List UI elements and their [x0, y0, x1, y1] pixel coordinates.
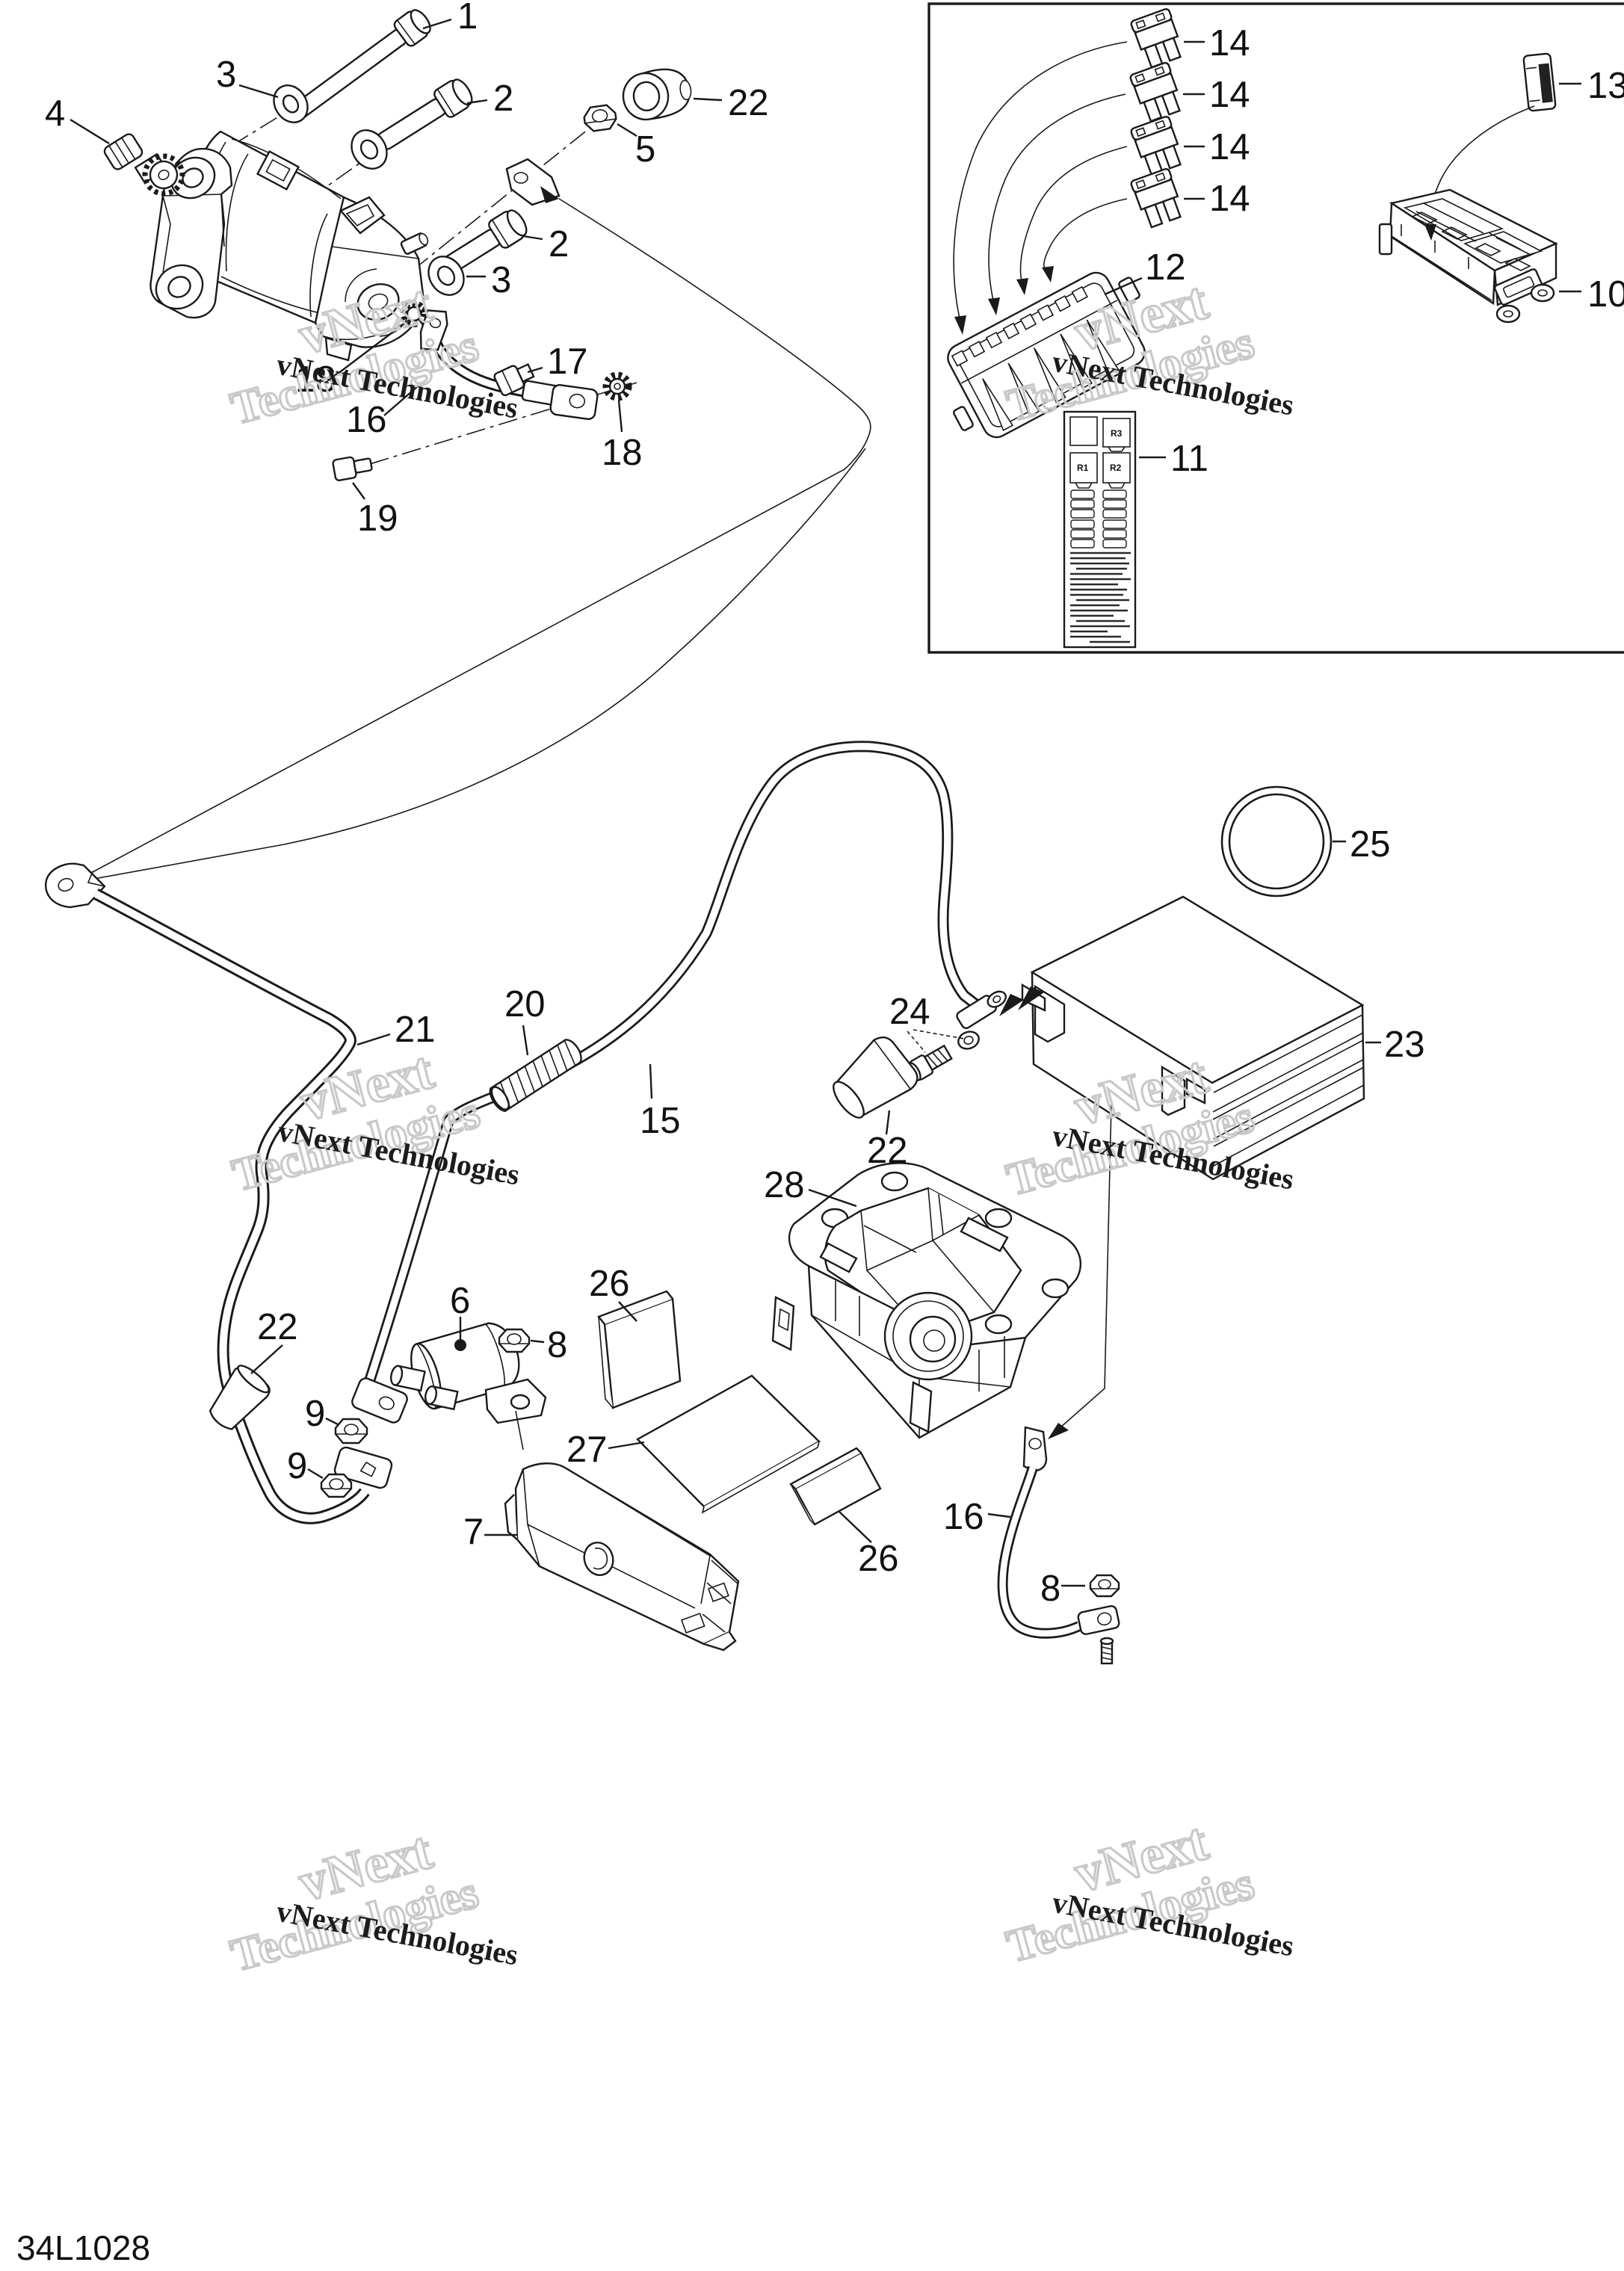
svg-text:14: 14 — [1209, 179, 1250, 219]
svg-text:20: 20 — [504, 984, 546, 1025]
svg-text:14: 14 — [1209, 127, 1250, 167]
svg-text:8: 8 — [1040, 1569, 1060, 1609]
svg-text:19: 19 — [357, 498, 398, 539]
svg-text:26: 26 — [858, 1539, 899, 1579]
svg-text:2: 2 — [549, 224, 569, 265]
svg-text:16: 16 — [943, 1497, 984, 1537]
svg-text:R1: R1 — [1077, 463, 1089, 473]
svg-text:14: 14 — [1209, 23, 1250, 64]
svg-text:3: 3 — [491, 260, 511, 300]
svg-text:27: 27 — [566, 1430, 608, 1470]
svg-text:22: 22 — [728, 83, 769, 123]
svg-text:13: 13 — [1587, 66, 1624, 106]
svg-text:3: 3 — [216, 55, 236, 95]
svg-text:28: 28 — [764, 1165, 805, 1205]
svg-text:5: 5 — [635, 129, 655, 170]
svg-text:8: 8 — [547, 1325, 567, 1365]
svg-text:23: 23 — [1384, 1025, 1425, 1065]
svg-text:14: 14 — [1209, 75, 1250, 115]
svg-text:34L1028: 34L1028 — [16, 2228, 150, 2267]
svg-text:25: 25 — [1350, 824, 1391, 865]
svg-text:26: 26 — [589, 1264, 630, 1304]
svg-text:15: 15 — [640, 1101, 681, 1141]
svg-text:4: 4 — [45, 93, 65, 134]
svg-text:9: 9 — [287, 1446, 307, 1486]
svg-text:1: 1 — [457, 0, 478, 37]
svg-text:18: 18 — [602, 433, 643, 473]
svg-text:2: 2 — [493, 78, 513, 119]
svg-text:9: 9 — [305, 1394, 325, 1434]
svg-text:22: 22 — [257, 1307, 298, 1347]
svg-text:R3: R3 — [1111, 428, 1123, 439]
svg-text:7: 7 — [463, 1512, 484, 1552]
svg-text:11: 11 — [1170, 439, 1208, 479]
svg-text:6: 6 — [450, 1281, 470, 1321]
svg-text:16: 16 — [346, 400, 387, 440]
svg-text:24: 24 — [889, 992, 930, 1032]
svg-text:17: 17 — [547, 342, 588, 382]
svg-text:10: 10 — [1587, 274, 1624, 315]
svg-text:R2: R2 — [1110, 463, 1122, 473]
